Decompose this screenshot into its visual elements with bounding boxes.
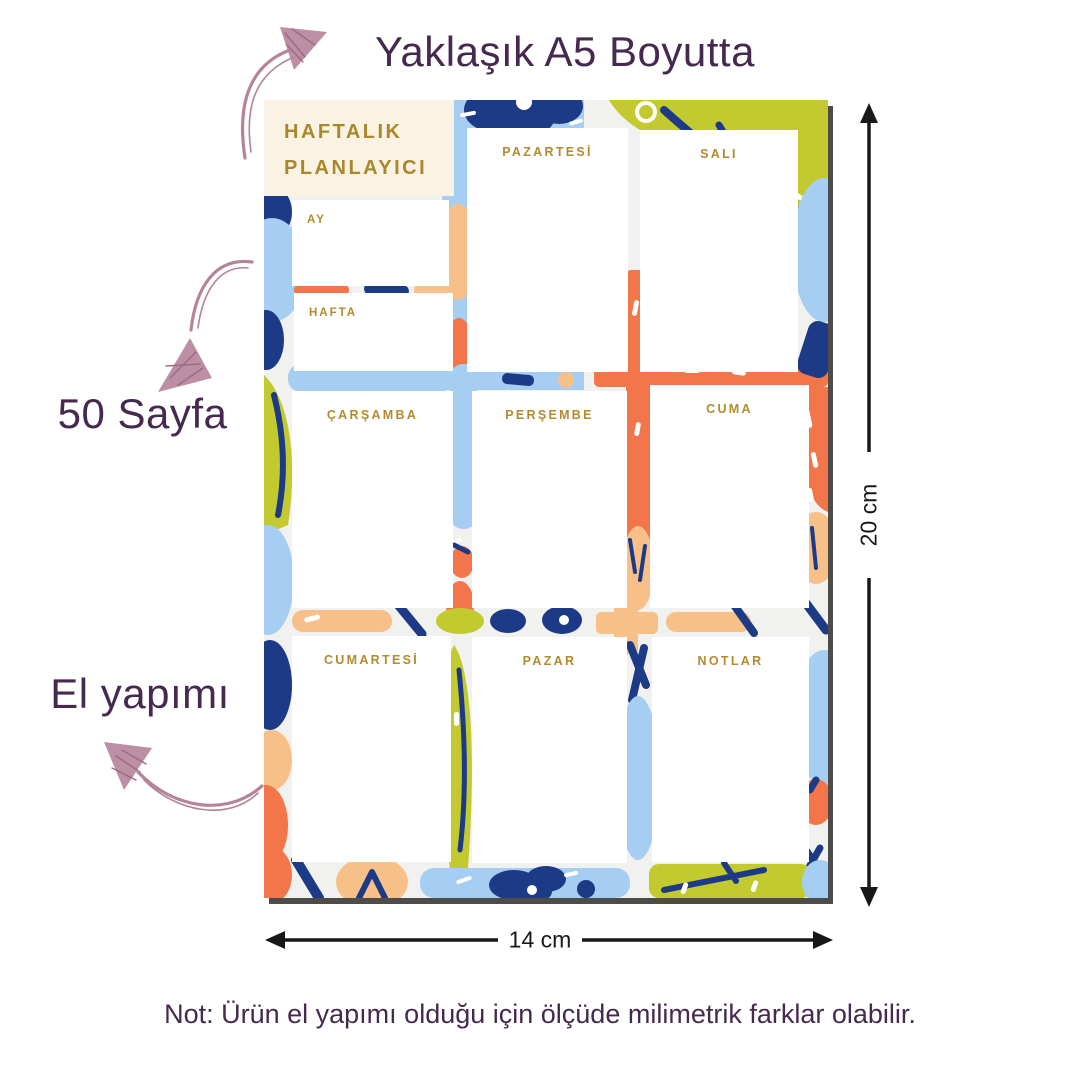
handmade-caption: El yapımı — [20, 670, 260, 718]
cell-wednesday: ÇARŞAMBA — [292, 391, 453, 608]
height-dimension-label: 20 cm — [856, 484, 883, 547]
cell-thursday: PERŞEMBE — [472, 391, 627, 608]
cell-tuesday-label: SALI — [640, 130, 798, 161]
doodle-arrow-handmade-icon — [104, 742, 262, 810]
cell-tuesday: SALI — [640, 130, 798, 372]
cell-month: AY — [292, 200, 449, 286]
footnote: Not: Ürün el yapımı olduğu için ölçüde m… — [0, 999, 1080, 1030]
cell-saturday: CUMARTESİ — [292, 636, 451, 862]
cell-friday-label: CUMA — [650, 385, 809, 416]
cell-notes-label: NOTLAR — [652, 637, 809, 668]
pages-caption: 50 Sayfa — [35, 390, 250, 438]
cell-friday: CUMA — [650, 385, 809, 608]
cell-week-label: HAFTA — [294, 293, 453, 319]
cell-monday: PAZARTESİ — [467, 128, 628, 372]
cell-monday-label: PAZARTESİ — [467, 128, 628, 159]
planner-header: HAFTALIK PLANLAYICI — [264, 100, 454, 196]
width-dimension-label: 14 cm — [509, 927, 572, 954]
cell-notes: NOTLAR — [652, 637, 809, 862]
cell-sunday: PAZAR — [472, 637, 627, 863]
cell-wednesday-label: ÇARŞAMBA — [292, 391, 453, 422]
cell-saturday-label: CUMARTESİ — [292, 636, 451, 667]
cell-sunday-label: PAZAR — [472, 637, 627, 668]
size-caption: Yaklaşık A5 Boyutta — [330, 28, 800, 76]
planner-title-line1: HAFTALIK — [284, 114, 454, 150]
planner-notepad: HAFTALIK PLANLAYICI AY HAFTA PAZARTESİ S… — [264, 100, 828, 898]
cell-week: HAFTA — [294, 293, 453, 371]
doodle-arrow-pages-icon — [158, 261, 252, 392]
planner-title-line2: PLANLAYICI — [284, 150, 454, 186]
cell-thursday-label: PERŞEMBE — [472, 391, 627, 422]
cell-month-label: AY — [292, 200, 449, 226]
